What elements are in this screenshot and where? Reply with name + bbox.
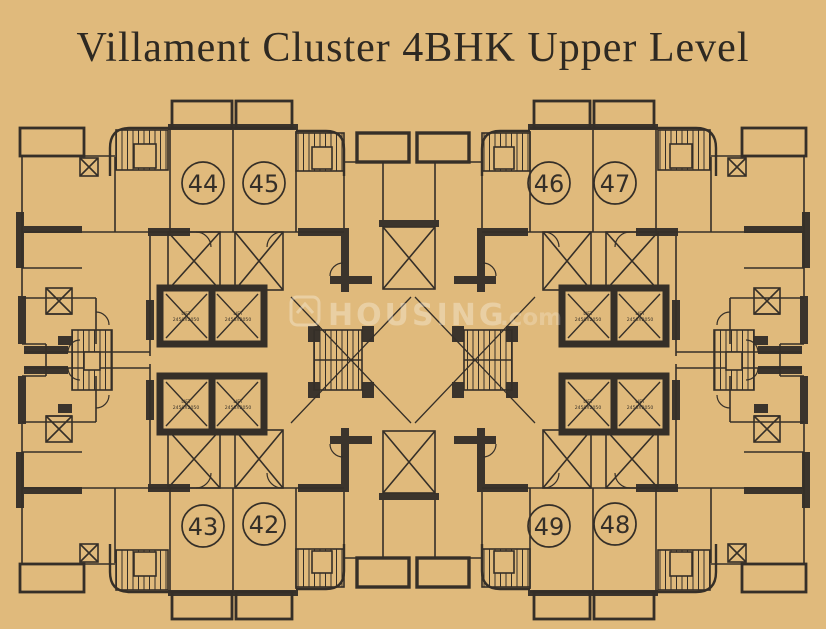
unit-49-number: 49: [534, 513, 565, 541]
lift-size-label: 2450X2050: [173, 405, 200, 411]
watermark-tld: .com: [500, 305, 562, 331]
central-shaft-mirror: [379, 431, 439, 558]
unit-42-marker: 42: [243, 503, 285, 545]
wing-quadrant-mirror-bottom: [16, 364, 409, 619]
unit-44-marker: 44: [182, 162, 224, 204]
lift-size-label: 2450X2050: [225, 317, 252, 323]
lift-name-label: LIFT: [583, 311, 592, 317]
unit-42-number: 42: [249, 511, 280, 539]
unit-47-marker: 47: [594, 162, 636, 204]
balcony-boxes: [20, 101, 409, 162]
lift-name-label: LIFT: [181, 311, 190, 317]
unit-markers: 44 45 46 47 43 42: [182, 162, 636, 547]
lift-name-label: LIFT: [583, 399, 592, 405]
lift-size-label: 2450X2050: [225, 405, 252, 411]
unit-49-marker: 49: [528, 505, 570, 547]
stairwell: [110, 128, 168, 176]
lift-core: [160, 288, 264, 344]
central-stairwell: [314, 330, 362, 390]
floorplan-drawing: HOUSING .com 44 45 46 47 43: [0, 0, 826, 629]
lift-size-label: 2450X2050: [627, 405, 654, 411]
lift-name-label: LIFT: [233, 399, 242, 405]
edge-stairwell: [22, 314, 112, 416]
watermark: HOUSING .com: [291, 297, 562, 333]
wing-quadrant-mirror-diagonal: [417, 364, 810, 619]
lift-size-label: 2450X2050: [173, 317, 200, 323]
unit-46-number: 46: [534, 170, 565, 198]
unit-44-number: 44: [188, 170, 219, 198]
lift-size-label: 2450X2050: [627, 317, 654, 323]
central-shaft: [379, 162, 439, 289]
lift-size-label: 2450X2050: [575, 405, 602, 411]
lift-size-label: 2450X2050: [575, 317, 602, 323]
unit-43-number: 43: [188, 513, 219, 541]
unit-47-number: 47: [600, 170, 631, 198]
unit-45-marker: 45: [243, 162, 285, 204]
lift-name-label: LIFT: [233, 311, 242, 317]
unit-46-marker: 46: [528, 162, 570, 204]
stairwell: [296, 131, 344, 176]
unit-43-marker: 43: [182, 505, 224, 547]
lift-name-label: LIFT: [635, 311, 644, 317]
unit-45-number: 45: [249, 170, 280, 198]
edge-and-core-stairs: [22, 288, 374, 442]
lift-name-label: LIFT: [181, 399, 190, 405]
duct-shafts: [46, 288, 72, 442]
unit-48-number: 48: [600, 511, 631, 539]
watermark-brand: HOUSING: [328, 298, 506, 333]
lift-name-label: LIFT: [635, 399, 644, 405]
unit-48-marker: 48: [594, 503, 636, 545]
floorplan-page: Villament Cluster 4BHK Upper Level: [0, 0, 826, 629]
